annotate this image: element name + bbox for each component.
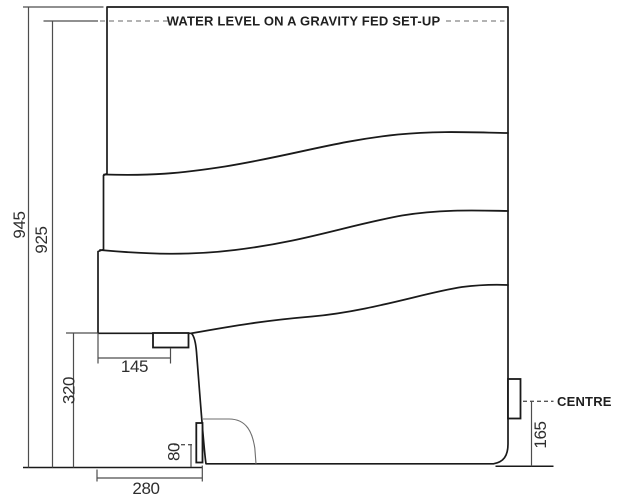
- centre-label: CENTRE: [557, 394, 612, 409]
- dimension-label-145: 145: [121, 357, 148, 376]
- inlet-spigot: [153, 333, 189, 348]
- dimension-320: 320: [60, 333, 98, 468]
- dimension-label-280: 280: [132, 479, 159, 498]
- dimension-280: 280: [97, 466, 202, 499]
- dimension-label-945: 945: [10, 211, 29, 238]
- technical-drawing-page: 945 925 WATER LEVEL ON A GRAVITY FED SET…: [0, 0, 622, 500]
- low-level-inlet-spigot: [196, 423, 202, 463]
- water-level-label: WATER LEVEL ON A GRAVITY FED SET-UP: [167, 14, 441, 29]
- dimension-80: 80: [165, 443, 194, 467]
- dimension-label-80: 80: [165, 443, 184, 461]
- contour-line-lower: [192, 285, 509, 334]
- body-outline: [98, 7, 508, 464]
- outlet-spigot: [508, 379, 521, 419]
- toilet-side-elevation-drawing: 945 925 WATER LEVEL ON A GRAVITY FED SET…: [0, 0, 622, 500]
- dimension-label-320: 320: [60, 377, 79, 404]
- trap-outline: [203, 419, 256, 464]
- contour-line-middle: [100, 210, 508, 253]
- dimension-label-165: 165: [531, 421, 550, 448]
- dimension-label-925: 925: [32, 226, 51, 253]
- contour-line-upper: [104, 132, 508, 175]
- dimension-165: 165: [531, 401, 550, 466]
- dimension-945: 945: [10, 7, 104, 468]
